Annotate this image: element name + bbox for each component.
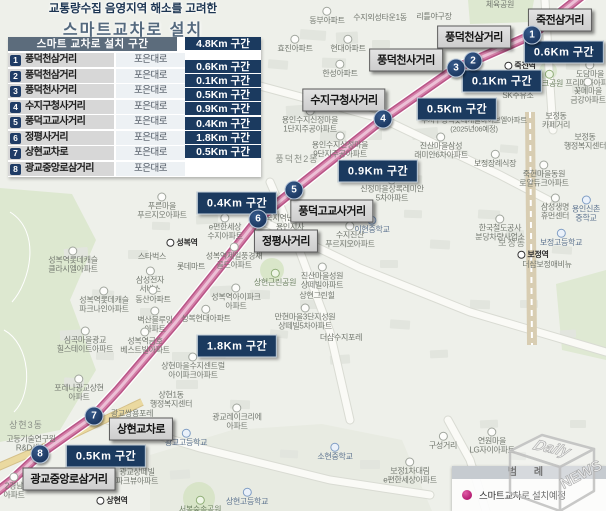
table-cell-intersection: 8광교중앙로삼거리 <box>8 162 114 176</box>
row-number-badge: 6 <box>10 133 21 144</box>
intersection-name: 풍덕고교사거리 <box>25 115 85 130</box>
row-number-badge: 5 <box>10 117 21 128</box>
table-cell-intersection: 4수지구청사거리 <box>8 100 114 114</box>
watermark-dailynews: Daily NEWS <box>508 433 606 511</box>
table-cell-road: 포은대로 <box>116 131 185 145</box>
table-cell-road: 포은대로 <box>116 146 185 160</box>
intersection-name: 풍덕천삼거리 <box>25 53 77 68</box>
infographic-canvas: 체육공원리틀야구장동부아파트수지외성타운1동효진아파트현대아파트한성아파트죽전역… <box>0 0 606 511</box>
table-cell-distance: 1.8Km 구간 <box>185 131 261 144</box>
table-cell-distance: 0.9Km 구간 <box>185 102 261 115</box>
row-number-badge: 1 <box>10 55 21 66</box>
row-number-badge: 7 <box>10 148 21 159</box>
table-cell-road: 포은대로 <box>116 69 185 83</box>
table-cell-intersection: 2풍덕천삼거리 <box>8 69 114 83</box>
intersection-name: 풍덕천사거리 <box>25 84 77 99</box>
table-cell-intersection: 3풍덕천사거리 <box>8 84 114 98</box>
route-marker: 6 <box>249 210 268 229</box>
table-header-label: 스마트 교차로 설치 구간 <box>8 37 177 51</box>
table-cell-distance: 0.4Km 구간 <box>185 117 261 130</box>
row-number-badge: 4 <box>10 102 21 113</box>
route-marker: 4 <box>374 110 393 129</box>
table-cell-intersection: 7상현교차로 <box>8 146 114 160</box>
table-cell-intersection: 5풍덕고교사거리 <box>8 115 114 129</box>
route-marker: 5 <box>285 181 304 200</box>
row-number-badge: 8 <box>10 164 21 175</box>
table-cell-road: 포은대로 <box>116 100 185 114</box>
table-cell-road: 포은대로 <box>116 84 185 98</box>
watermark-cube-icon: Daily NEWS <box>508 433 606 511</box>
table-cell-road: 포은대로 <box>116 115 185 129</box>
route-marker: 7 <box>85 407 104 426</box>
route-marker: 2 <box>464 52 483 71</box>
table-row: 8광교중앙로삼거리포은대로 <box>8 162 261 176</box>
table-cell-intersection: 1풍덕천삼거리 <box>8 53 114 67</box>
table-cell-distance: 0.6Km 구간 <box>185 60 261 73</box>
table-cell-intersection: 6정평사거리 <box>8 131 114 145</box>
table-cell-road: 포은대로 <box>116 162 185 176</box>
intersection-name: 정평사거리 <box>25 131 68 146</box>
intersection-name: 수지구청사거리 <box>25 100 85 115</box>
intersection-name: 풍덕천삼거리 <box>25 69 77 84</box>
table-cell-distance: 0.5Km 구간 <box>185 88 261 101</box>
route-marker: 1 <box>523 26 542 45</box>
intersection-name: 상현교차로 <box>25 146 68 161</box>
title-line1: 교통량수집 음영지역 해소를 고려한 <box>0 0 266 16</box>
table-header-total: 4.8Km 구간 <box>185 37 261 50</box>
table-cell-distance: 0.5Km 구간 <box>185 145 261 158</box>
route-marker: 3 <box>447 59 466 78</box>
table-panel: 교통량수집 음영지역 해소를 고려한 스마트교차로 설치 스마트 교차로 설치 … <box>0 0 268 182</box>
intersection-name: 광교중앙로삼거리 <box>25 162 94 177</box>
legend-dot-icon <box>462 490 472 500</box>
row-number-badge: 3 <box>10 86 21 97</box>
table-cell-distance: 0.1Km 구간 <box>185 74 261 87</box>
row-number-badge: 2 <box>10 71 21 82</box>
table-cell-road: 포은대로 <box>116 53 185 67</box>
route-marker: 8 <box>31 445 50 464</box>
